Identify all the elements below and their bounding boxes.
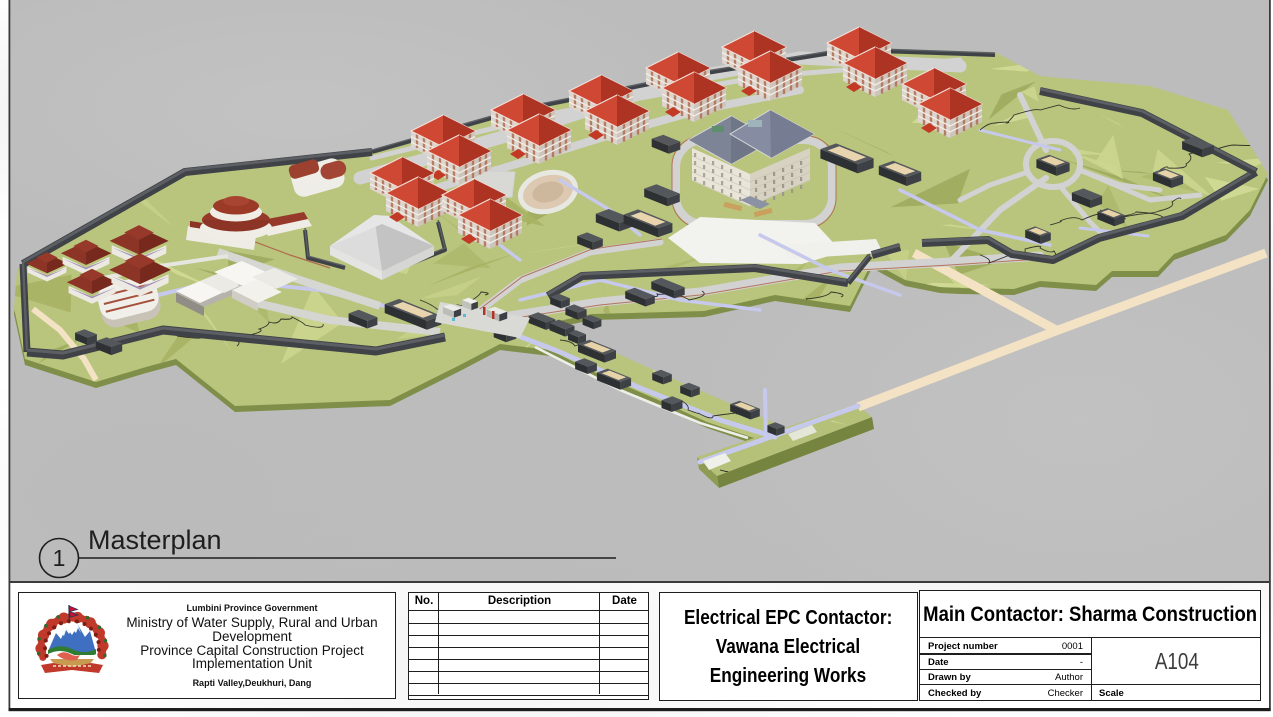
- svg-text:1: 1: [53, 545, 66, 571]
- svg-text:Masterplan: Masterplan: [88, 525, 222, 555]
